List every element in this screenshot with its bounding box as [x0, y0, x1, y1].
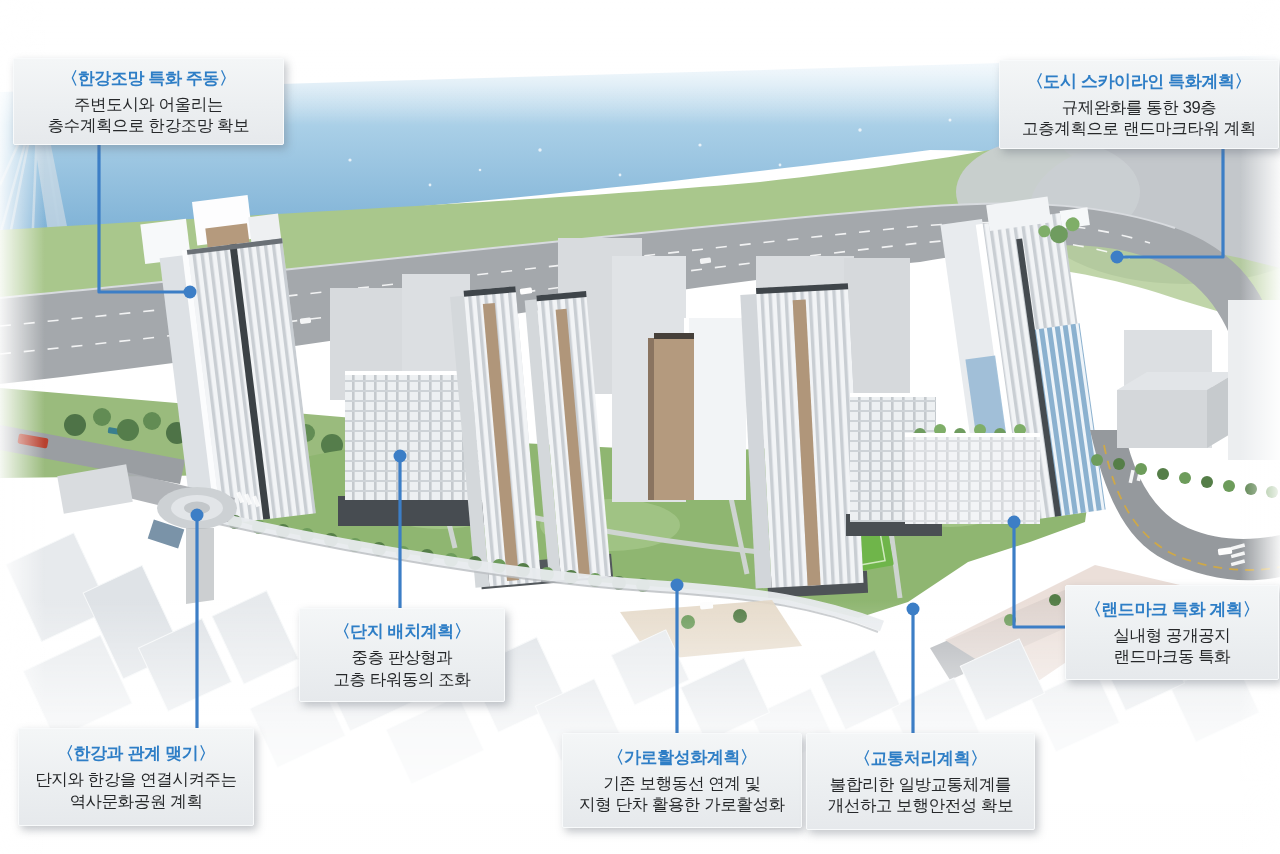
callout-title: 〈단지 배치계획〉 — [333, 620, 470, 643]
leader-hangang-view-tower — [99, 143, 185, 292]
callout-body: 중층 판상형과 고층 타워동의 조화 — [333, 647, 470, 690]
anchor-dot-hangang-view-tower — [184, 286, 197, 299]
anchor-dot-site-layout — [394, 450, 407, 463]
callout-title: 〈한강조망 특화 주동〉 — [61, 67, 236, 90]
anchor-dot-hangang-connection — [191, 509, 204, 522]
callout-site-layout: 〈단지 배치계획〉 중층 판상형과 고층 타워동의 조화 — [299, 608, 505, 702]
callout-body: 단지와 한강을 연결시켜주는 역사문화공원 계획 — [35, 769, 237, 812]
callout-traffic-plan: 〈교통처리계획〉 불합리한 일방교통체계를 개선하고 보행안전성 확보 — [806, 733, 1035, 830]
callout-hangang-connection: 〈한강과 관계 맺기〉 단지와 한강을 연결시켜주는 역사문화공원 계획 — [18, 728, 254, 826]
leader-landmark-plan — [1014, 525, 1065, 627]
callout-title: 〈한강과 관계 맺기〉 — [57, 742, 215, 765]
masterplan-rendering-page: 〈한강조망 특화 주동〉 주변도시와 어울리는 층수계획으로 한강조망 확보 〈… — [0, 0, 1280, 854]
callout-body: 주변도시와 어울리는 층수계획으로 한강조망 확보 — [48, 94, 250, 137]
callout-body: 실내형 공개공지 랜드마크동 특화 — [1114, 625, 1231, 668]
leader-city-skyline — [1122, 147, 1223, 257]
anchor-dot-landmark-plan — [1008, 516, 1021, 529]
callout-body: 기존 보행동선 연계 및 지형 단차 활용한 가로활성화 — [579, 773, 785, 816]
callout-title: 〈도시 스카이라인 특화계획〉 — [1027, 70, 1251, 93]
anchor-dot-city-skyline — [1111, 251, 1124, 264]
callout-body: 규제완화를 통한 39층 고층계획으로 랜드마크타워 계획 — [1022, 97, 1256, 140]
callout-hangang-view-tower: 〈한강조망 특화 주동〉 주변도시와 어울리는 층수계획으로 한강조망 확보 — [13, 58, 284, 145]
anchor-dot-traffic-plan — [907, 603, 920, 616]
callout-body: 불합리한 일방교통체계를 개선하고 보행안전성 확보 — [828, 774, 1013, 817]
anchor-dot-street-activation — [671, 579, 684, 592]
callout-title: 〈가로활성화계획〉 — [607, 746, 756, 769]
callout-landmark-plan: 〈랜드마크 특화 계획〉 실내형 공개공지 랜드마크동 특화 — [1065, 585, 1279, 680]
callout-city-skyline: 〈도시 스카이라인 특화계획〉 규제완화를 통한 39층 고층계획으로 랜드마크… — [999, 60, 1279, 149]
callout-title: 〈교통처리계획〉 — [854, 747, 987, 770]
callout-street-activation: 〈가로활성화계획〉 기존 보행동선 연계 및 지형 단차 활용한 가로활성화 — [562, 733, 802, 828]
callout-title: 〈랜드마크 특화 계획〉 — [1085, 598, 1260, 621]
